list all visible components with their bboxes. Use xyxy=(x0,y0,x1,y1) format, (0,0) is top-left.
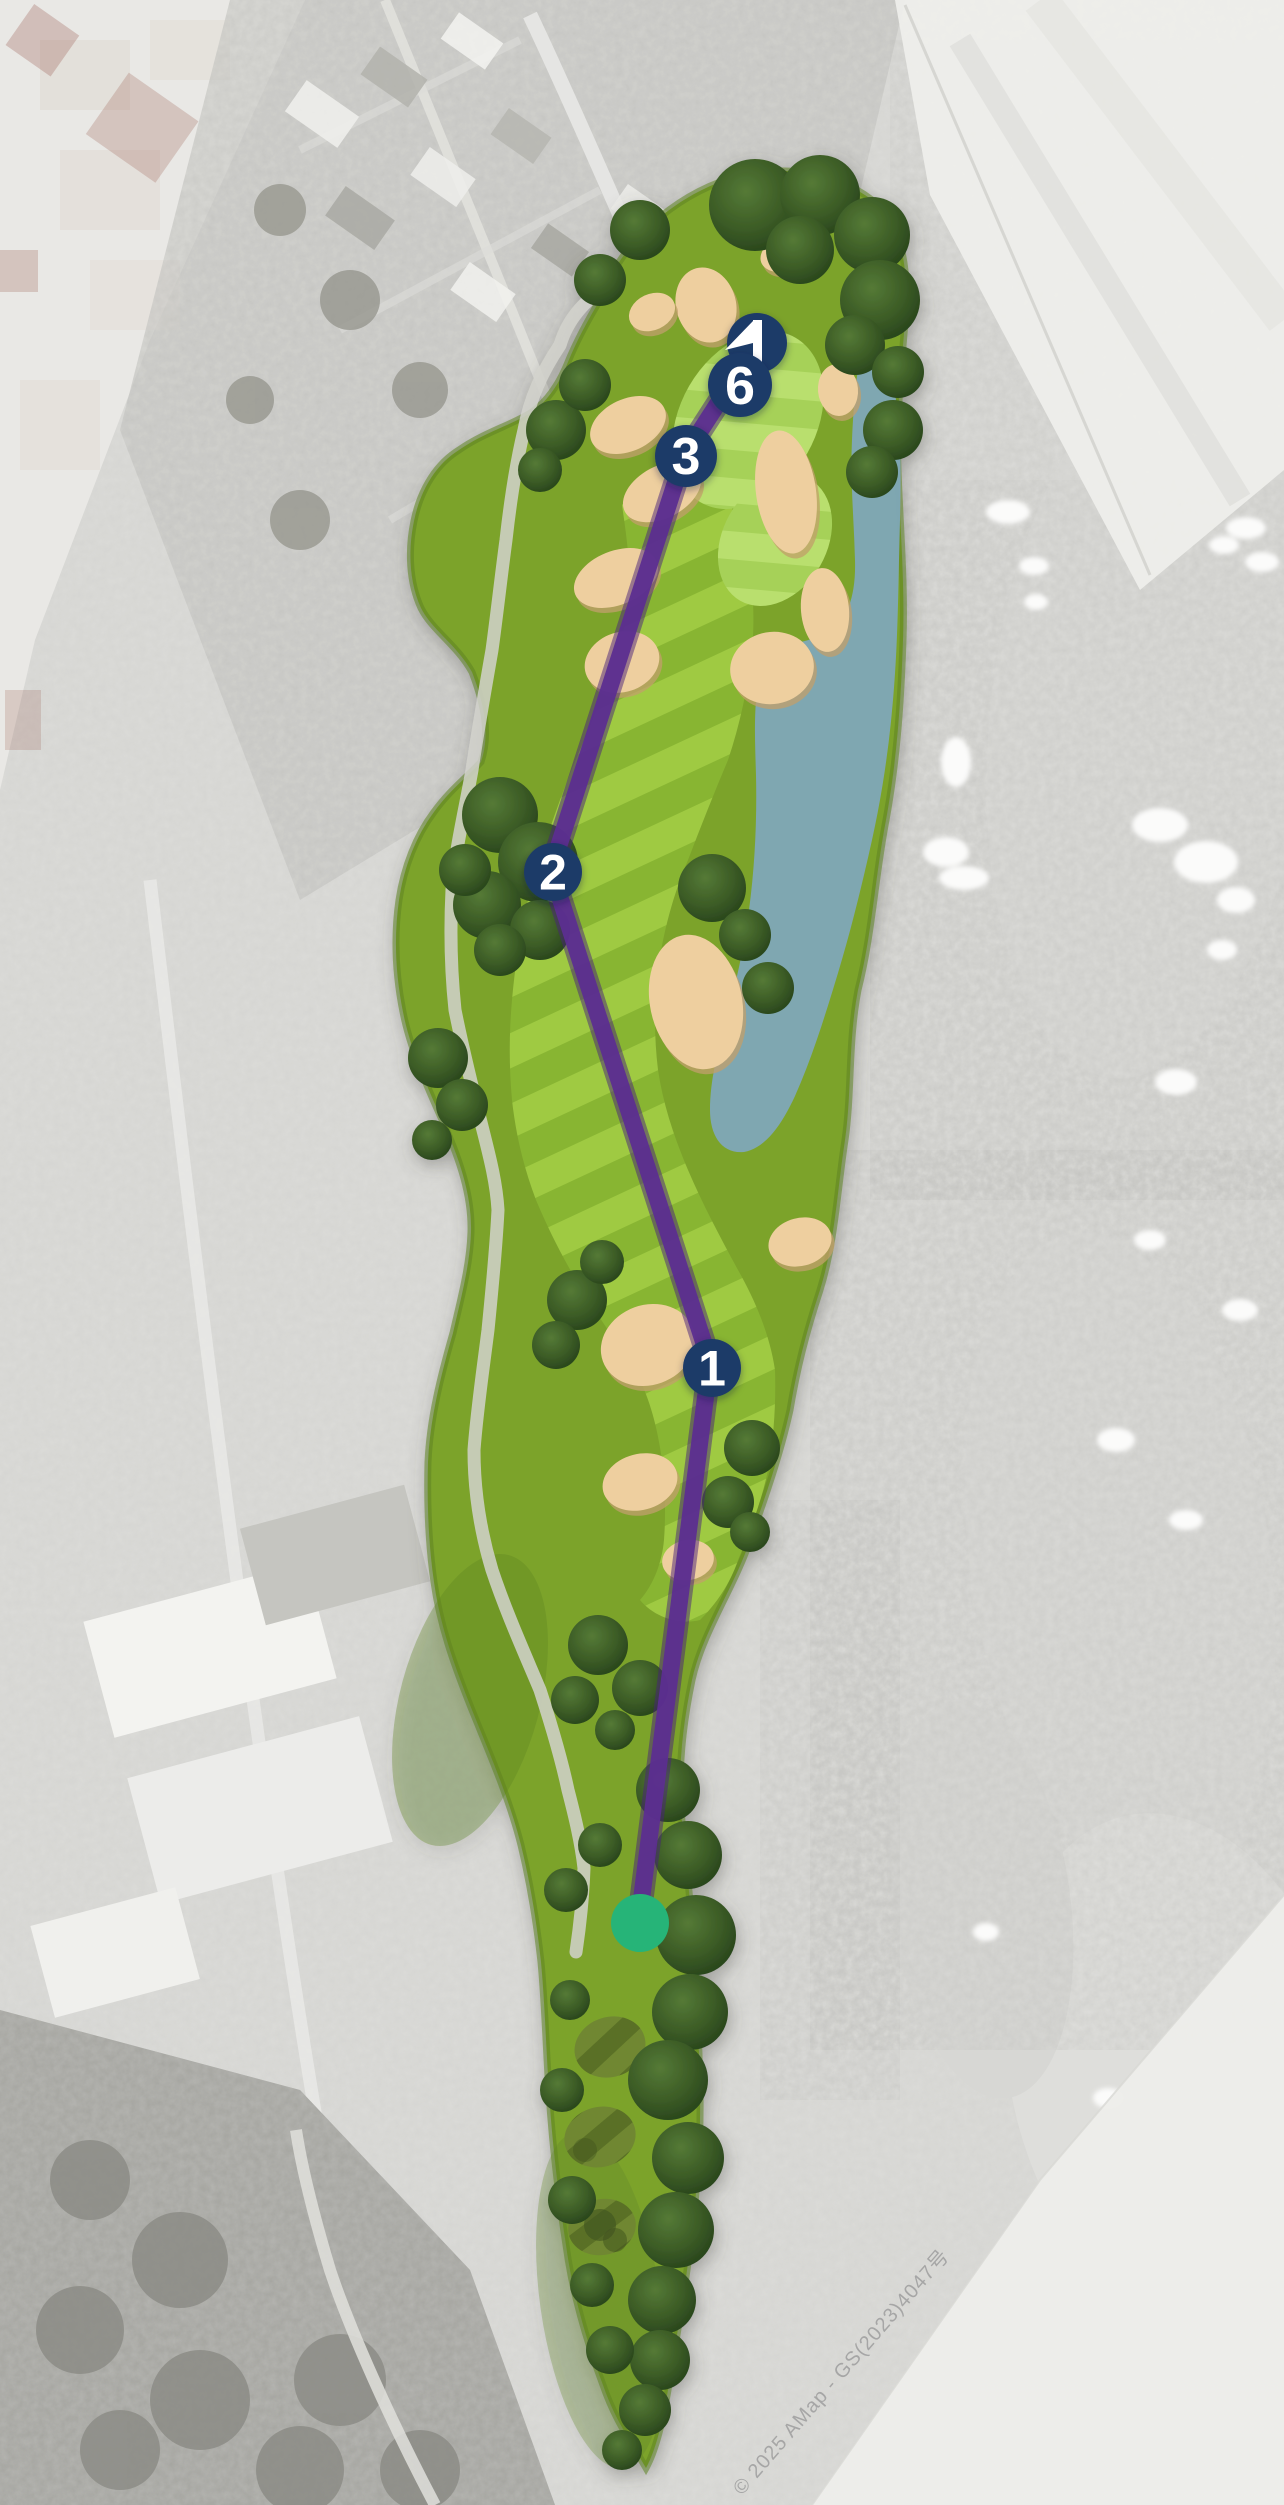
marker-waypoint-1[interactable]: 1 xyxy=(683,1339,741,1397)
marker-waypoint-2[interactable]: 2 xyxy=(524,843,582,901)
marker-label: 6 xyxy=(725,356,755,416)
marker-label: 3 xyxy=(672,428,701,486)
map-canvas: 6 3 2 1 © 2025 AMap - GS(2023)4047号 xyxy=(0,0,1284,2505)
marker-label: 2 xyxy=(539,845,567,901)
marker-label: 1 xyxy=(698,1341,726,1397)
golf-hole-map-svg: 6 3 2 1 © 2025 AMap - GS(2023)4047号 xyxy=(0,0,1284,2505)
tee-marker[interactable] xyxy=(611,1894,669,1952)
marker-waypoint-3[interactable]: 3 xyxy=(655,425,717,487)
marker-waypoint-6[interactable]: 6 xyxy=(708,353,772,417)
